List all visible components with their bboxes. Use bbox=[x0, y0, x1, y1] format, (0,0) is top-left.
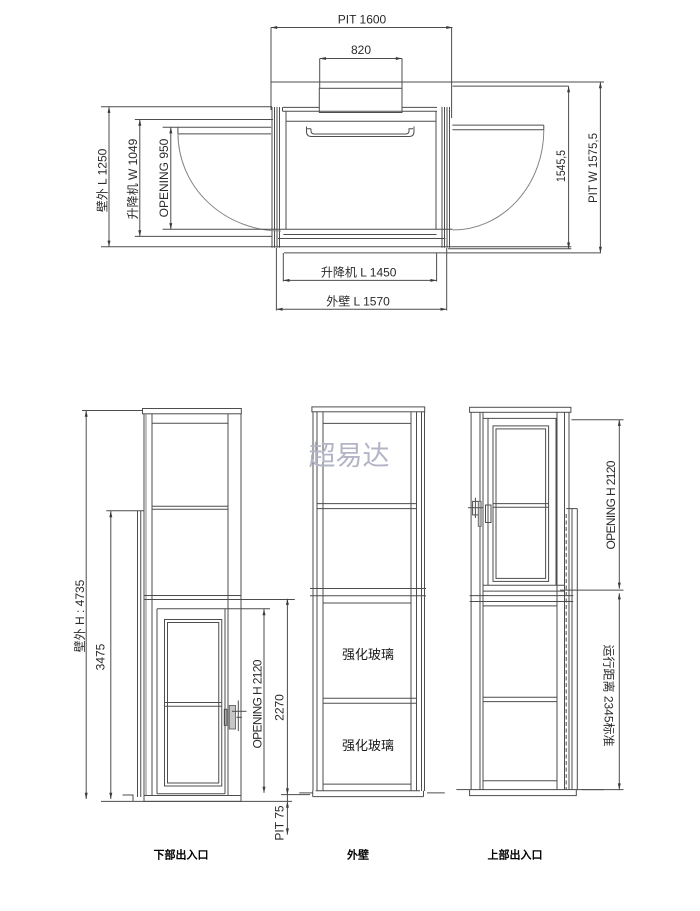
svg-text:PIT W 1575,5: PIT W 1575,5 bbox=[586, 133, 600, 203]
svg-text:OPENING H 2120: OPENING H 2120 bbox=[251, 659, 265, 748]
svg-text:2270: 2270 bbox=[273, 694, 287, 721]
svg-text:下部出入口: 下部出入口 bbox=[154, 848, 209, 862]
svg-text:外壁: 外壁 bbox=[346, 848, 369, 862]
svg-text:820: 820 bbox=[351, 43, 371, 57]
svg-text:外壁 L 1570: 外壁 L 1570 bbox=[326, 294, 390, 309]
svg-text:OPENING H 2120: OPENING H 2120 bbox=[604, 460, 618, 549]
svg-text:运行距离 2345标准: 运行距离 2345标准 bbox=[602, 644, 617, 746]
svg-text:壁外 H : 4735: 壁外 H : 4735 bbox=[72, 579, 87, 652]
svg-text:OPENING 950: OPENING 950 bbox=[157, 138, 171, 217]
svg-text:PIT 75: PIT 75 bbox=[273, 805, 287, 840]
svg-text:强化玻璃: 强化玻璃 bbox=[342, 647, 394, 662]
svg-text:超易达: 超易达 bbox=[309, 441, 390, 471]
svg-text:上部出入口: 上部出入口 bbox=[488, 848, 543, 862]
svg-text:升降机 L 1450: 升降机 L 1450 bbox=[321, 266, 397, 280]
svg-text:强化玻璃: 强化玻璃 bbox=[342, 738, 394, 753]
svg-text:升降机 W 1049: 升降机 W 1049 bbox=[126, 138, 140, 219]
svg-text:PIT 1600: PIT 1600 bbox=[338, 13, 387, 27]
svg-text:壁外 L 1250: 壁外 L 1250 bbox=[95, 148, 110, 212]
svg-text:1545,5: 1545,5 bbox=[554, 150, 568, 182]
svg-text:3475: 3475 bbox=[94, 643, 108, 670]
